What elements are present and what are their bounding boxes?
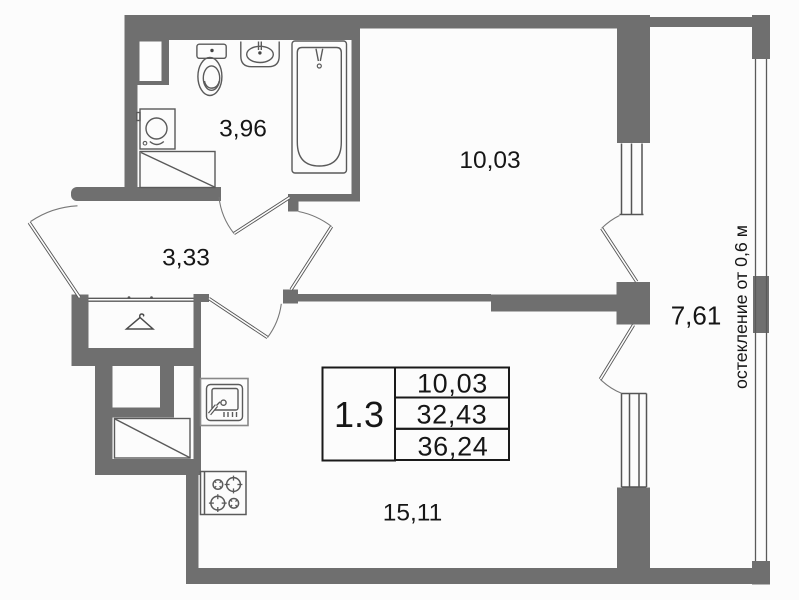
svg-text:остекление от 0,6 м: остекление от 0,6 м [731, 225, 751, 389]
svg-text:15,11: 15,11 [383, 499, 443, 526]
svg-text:32,43: 32,43 [416, 400, 487, 430]
svg-text:1.3: 1.3 [334, 394, 384, 435]
svg-text:3,96: 3,96 [219, 116, 267, 143]
svg-text:10,03: 10,03 [459, 147, 520, 174]
svg-text:3,33: 3,33 [162, 245, 210, 272]
svg-text:36,24: 36,24 [417, 431, 488, 461]
svg-text:10,03: 10,03 [417, 368, 488, 398]
svg-text:7,61: 7,61 [671, 301, 722, 331]
